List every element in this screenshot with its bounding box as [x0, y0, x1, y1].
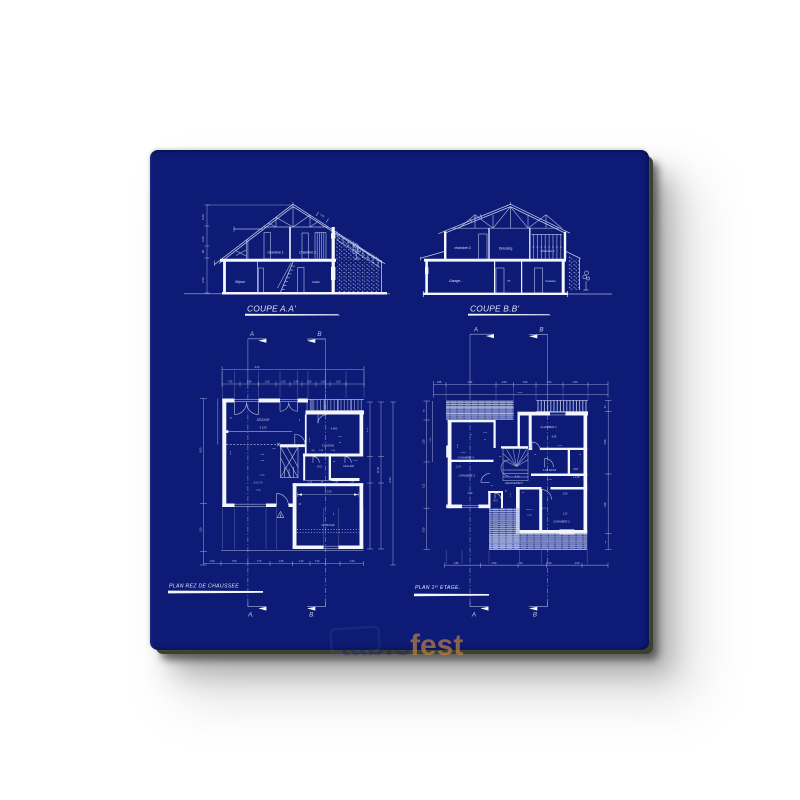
- svg-text:50: 50: [499, 456, 502, 458]
- svg-text:1.05: 1.05: [510, 492, 512, 497]
- svg-text:1.50: 1.50: [523, 381, 528, 384]
- svg-text:B: B: [539, 327, 543, 334]
- svg-text:1.50: 1.50: [350, 481, 355, 483]
- svg-text:50: 50: [579, 454, 582, 456]
- svg-text:S.DE BAINS: S.DE BAINS: [543, 469, 557, 472]
- svg-text:86: 86: [339, 442, 342, 444]
- svg-text:CHAMBRE 1: CHAMBRE 1: [540, 425, 557, 429]
- svg-text:1.22: 1.22: [563, 513, 568, 516]
- svg-text:960: 960: [311, 450, 315, 452]
- svg-text:9.00: 9.00: [255, 366, 260, 369]
- svg-text:60: 60: [522, 492, 525, 494]
- svg-text:1.40: 1.40: [299, 560, 304, 563]
- svg-text:PLAN 1er ETAGE.: PLAN 1er ETAGE.: [415, 585, 461, 592]
- svg-text:chambre 3.: chambre 3.: [455, 246, 472, 250]
- svg-text:1.50: 1.50: [430, 437, 432, 442]
- svg-text:90: 90: [605, 405, 607, 408]
- svg-text:45: 45: [605, 540, 607, 543]
- svg-text:A.: A.: [247, 612, 254, 619]
- svg-text:3.84: 3.84: [468, 381, 473, 384]
- svg-text:SALON: SALON: [253, 481, 263, 485]
- svg-text:7.22: 7.22: [423, 483, 426, 488]
- svg-text:11.55: 11.55: [377, 466, 380, 473]
- svg-text:Garage...: Garage...: [449, 279, 463, 283]
- svg-text:wc: wc: [508, 280, 512, 283]
- svg-text:B: B: [533, 612, 537, 619]
- svg-text:5.100: 5.100: [325, 490, 332, 494]
- svg-text:8.05: 8.05: [199, 447, 203, 453]
- svg-text:CELLIER: CELLIER: [343, 464, 354, 468]
- svg-text:7.20: 7.20: [315, 560, 320, 563]
- svg-text:3.01: 3.01: [558, 445, 563, 447]
- svg-text:GARAGE: GARAGE: [321, 523, 335, 527]
- svg-text:1.50: 1.50: [210, 560, 215, 563]
- svg-text:0.60: 0.60: [319, 213, 325, 218]
- svg-text:PLAN REZ DE CHAUSSEE: PLAN REZ DE CHAUSSEE: [169, 583, 239, 589]
- svg-text:9.00: 9.00: [518, 392, 523, 394]
- svg-text:60: 60: [333, 512, 335, 515]
- svg-text:1.45: 1.45: [457, 443, 459, 448]
- svg-text:1.90: 1.90: [230, 450, 232, 455]
- svg-text:7.60: 7.60: [331, 450, 336, 452]
- svg-text:3.60: 3.60: [309, 437, 311, 442]
- svg-text:7.50: 7.50: [423, 527, 426, 532]
- svg-text:chambre 1.: chambre 1.: [268, 251, 285, 255]
- svg-text:Chambre 1: Chambre 1: [540, 249, 555, 253]
- svg-text:1.2.8: 1.2.8: [455, 466, 461, 469]
- svg-text:AGT 2: AGT 2: [542, 507, 549, 510]
- svg-text:CHAMBRE 2: CHAMBRE 2: [553, 519, 570, 523]
- svg-text:1.36: 1.36: [547, 479, 552, 481]
- svg-text:2.50: 2.50: [201, 236, 205, 242]
- svg-text:1.50: 1.50: [350, 560, 355, 563]
- svg-text:4.50: 4.50: [367, 427, 369, 432]
- svg-text:W.C.: W.C.: [493, 500, 499, 503]
- svg-text:3.00: 3.00: [547, 562, 552, 565]
- svg-text:+ 1.38: + 1.38: [573, 477, 580, 479]
- svg-text:1.50: 1.50: [256, 489, 261, 492]
- svg-text:1.50: 1.50: [307, 381, 312, 384]
- svg-text:A: A: [473, 327, 478, 334]
- svg-text:7.50: 7.50: [232, 560, 237, 563]
- svg-text:1.60: 1.60: [573, 381, 578, 384]
- svg-text:7.70: 7.70: [257, 560, 262, 563]
- svg-text:90: 90: [299, 418, 301, 421]
- svg-text:RGT 2: RGT 2: [526, 509, 533, 511]
- svg-text:CHAMBRE 4: CHAMBRE 4: [458, 455, 475, 459]
- svg-text:1.60: 1.60: [575, 562, 580, 565]
- svg-text:2.80: 2.80: [563, 493, 568, 496]
- svg-text:SÉJOUR: SÉJOUR: [257, 417, 271, 422]
- svg-text:1.88: 1.88: [454, 562, 459, 565]
- svg-text:1.05: 1.05: [279, 560, 284, 563]
- svg-text:90: 90: [333, 461, 336, 463]
- svg-text:1.50: 1.50: [353, 460, 358, 462]
- svg-text:.90: .90: [201, 249, 205, 254]
- svg-text:L.90: L.90: [260, 474, 265, 477]
- svg-text:3.98: 3.98: [461, 452, 466, 454]
- svg-text:3.50: 3.50: [604, 439, 607, 444]
- svg-text:RGT: RGT: [573, 468, 579, 471]
- svg-text:60: 60: [520, 562, 523, 565]
- svg-text:L.90: L.90: [260, 460, 265, 462]
- svg-text:Cellier: Cellier: [312, 280, 321, 284]
- svg-text:1.50: 1.50: [308, 481, 313, 483]
- svg-text:______: ______: [259, 429, 266, 431]
- svg-text:1.60: 1.60: [338, 436, 343, 438]
- svg-text:1.80: 1.80: [334, 481, 339, 483]
- svg-text:1.50: 1.50: [200, 527, 203, 532]
- svg-text:8.60: 8.60: [201, 214, 205, 220]
- svg-text:4.06: 4.06: [552, 436, 557, 439]
- svg-text:COUPE A.A': COUPE A.A': [247, 304, 296, 314]
- svg-text:B.: B.: [309, 612, 315, 619]
- svg-text:A: A: [471, 612, 476, 619]
- svg-text:1.88: 1.88: [437, 381, 442, 384]
- svg-text:M: M: [299, 503, 301, 506]
- svg-text:1.98: 1.98: [247, 381, 252, 384]
- svg-text:1.50: 1.50: [336, 381, 341, 384]
- svg-text:1.20: 1.20: [281, 381, 286, 384]
- svg-text:60: 60: [505, 491, 508, 493]
- svg-text:50: 50: [534, 454, 537, 456]
- svg-text:W.C.: W.C.: [317, 464, 323, 468]
- svg-text:2.98: 2.98: [467, 492, 473, 495]
- svg-text:4.400: 4.400: [331, 426, 338, 430]
- svg-text:Dressing.: Dressing.: [499, 247, 513, 251]
- svg-text:90: 90: [321, 481, 324, 483]
- svg-text:1.50: 1.50: [321, 381, 326, 384]
- svg-text:7.05: 7.05: [228, 381, 233, 384]
- svg-text:1.50: 1.50: [547, 381, 552, 384]
- svg-text:6.50: 6.50: [389, 477, 392, 482]
- svg-text:1.98: 1.98: [604, 502, 607, 507]
- svg-text:50: 50: [484, 439, 487, 441]
- svg-text:Séjour: Séjour: [235, 280, 246, 284]
- svg-text:1.10: 1.10: [527, 515, 532, 517]
- svg-text:COUPE B.B': COUPE B.B': [470, 304, 519, 314]
- svg-text:1.50: 1.50: [265, 381, 270, 384]
- svg-text:CUISINE: CUISINE: [322, 443, 335, 447]
- svg-text:1.45: 1.45: [483, 432, 488, 434]
- svg-text:50: 50: [470, 434, 473, 436]
- svg-text:Cuisine.: Cuisine.: [545, 279, 556, 283]
- svg-text:1.50: 1.50: [260, 454, 265, 456]
- svg-text:50: 50: [491, 485, 494, 487]
- svg-text:1.40: 1.40: [294, 381, 299, 384]
- svg-text:90: 90: [230, 418, 233, 420]
- svg-text:DEGAGEMENT: DEGAGEMENT: [505, 482, 523, 485]
- svg-text:1.50: 1.50: [502, 381, 507, 384]
- svg-text:3.40: 3.40: [515, 476, 520, 479]
- svg-text:3.60: 3.60: [492, 562, 497, 565]
- svg-text:960: 960: [272, 448, 276, 450]
- svg-text:60: 60: [424, 409, 426, 412]
- svg-text:B: B: [317, 331, 321, 338]
- svg-text:1.50: 1.50: [423, 439, 426, 444]
- svg-text:7.60: 7.60: [319, 450, 324, 452]
- svg-text:A: A: [249, 331, 254, 338]
- svg-text:2.50: 2.50: [201, 277, 205, 283]
- svg-text:Chambre 2.: Chambre 2.: [299, 251, 317, 255]
- svg-text:CHAMBRE 3: CHAMBRE 3: [459, 474, 476, 478]
